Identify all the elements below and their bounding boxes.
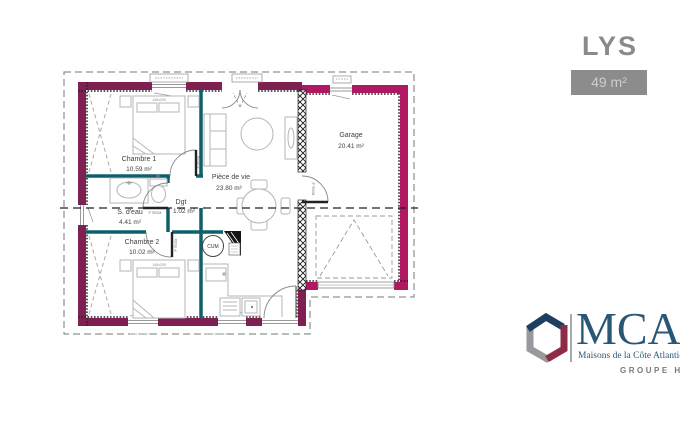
exterior-walls-garage [302, 85, 408, 290]
room-label-sdeau: S. d'eau [117, 209, 143, 216]
bed-size-label: 140x200 [152, 263, 166, 267]
area-badge: 49 m² [571, 70, 647, 95]
page-title: LYS [560, 31, 660, 62]
logo-tagline: Maisons de la Côte Atlantique [578, 351, 680, 361]
logo-group-name: GROUPE HEXAOM [620, 366, 680, 375]
bed-size-label: 140x200 [152, 98, 166, 102]
room-area-dgt: 1.02 m² [173, 208, 196, 215]
floor-plan-page: { "header": { "model_name": "LYS", "area… [0, 0, 680, 425]
room-label-dgt: Dgt [176, 199, 187, 206]
furniture-chambre2: 140x200 [120, 260, 199, 318]
mca-cube-logo-icon [522, 312, 570, 364]
door-size-label: P 75/204 [149, 211, 162, 215]
room-label-chambre2: Chambre 2 [125, 239, 160, 246]
door-size-label: P 75/204 [174, 238, 178, 251]
room-area-chambre1: 10.59 m² [126, 166, 152, 173]
door-size-label: P 75/204 [311, 183, 315, 196]
furniture-chambre1: 140x200 [120, 96, 199, 154]
water-heater-label: CUM [207, 244, 218, 250]
room-area-piece-de-vie: 23.80 m² [216, 185, 242, 192]
room-label-chambre1: Chambre 1 [122, 156, 157, 163]
water-heater: CUM [203, 231, 242, 257]
garage-door [316, 216, 394, 288]
room-area-sdeau: 4.41 m² [119, 219, 142, 226]
door-size-label: P 75/204 [197, 155, 201, 168]
shared-hatched-wall [298, 90, 306, 290]
logo-brand: MCA [576, 302, 680, 355]
furniture-piece-de-vie [204, 114, 297, 230]
furniture-kitchen [203, 264, 282, 317]
room-label-piece-de-vie: Pièce de vie [212, 174, 250, 181]
wardrobe-symbols [89, 94, 111, 314]
logo-separator [570, 314, 572, 362]
furniture-sdeau [110, 174, 167, 203]
floor-plan-svg: 140x200 140x200 [0, 0, 680, 425]
room-area-chambre2: 10.02 m² [129, 249, 155, 256]
room-area-garage: 20.41 m² [338, 143, 364, 150]
room-label-garage: Garage [339, 132, 362, 139]
